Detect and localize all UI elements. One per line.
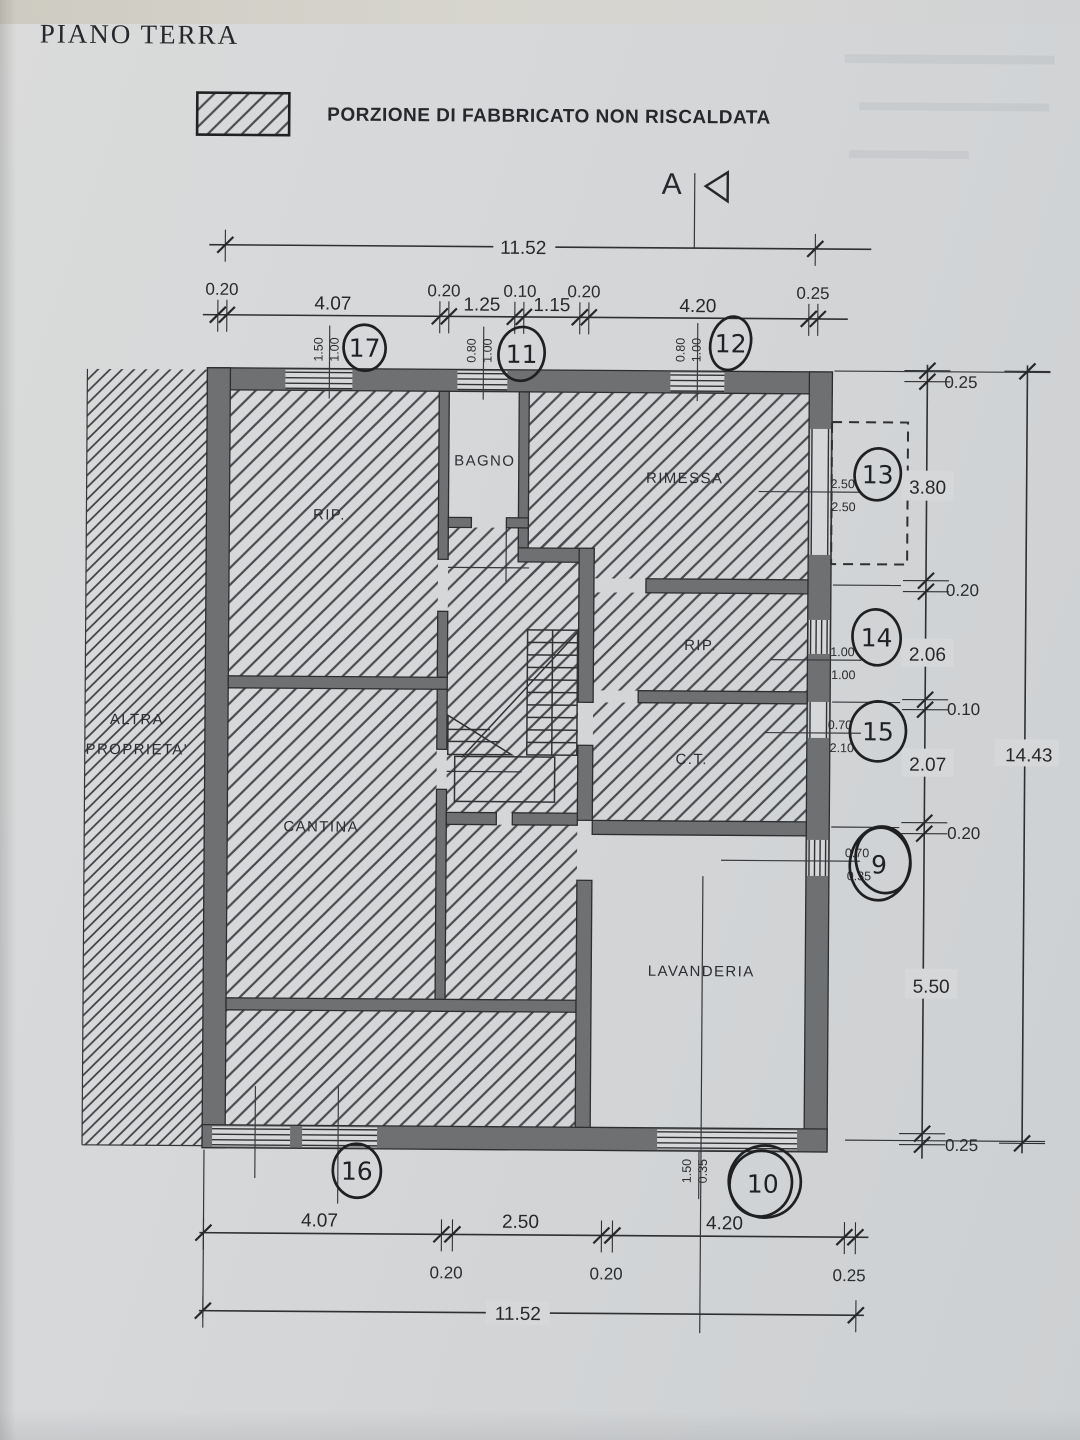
legend-label: PORZIONE DI FABBRICATO NON RISCALDATA xyxy=(327,105,771,129)
opening-14-width: 1.00 xyxy=(830,645,854,659)
room-label-altra-2: PROPRIETA' xyxy=(86,741,189,759)
opening-15-width: 0.70 xyxy=(828,718,852,732)
opening-10-number: 10 xyxy=(747,1169,779,1198)
dim-top-total: 11.52 xyxy=(500,238,546,259)
opening-12-number: 12 xyxy=(715,329,747,358)
dim-bottom-w3: 0.25 xyxy=(833,1266,866,1285)
opening-15-height: 2.10 xyxy=(830,741,854,755)
dim-bottom-total: 11.52 xyxy=(495,1304,541,1325)
legend-hatch-swatch xyxy=(197,93,289,136)
opening-15-number: 15 xyxy=(862,717,894,746)
dim-top-w1: 0.20 xyxy=(205,280,238,299)
room-label-cantina: CANTINA xyxy=(283,818,359,836)
scan-artifacts xyxy=(844,54,1055,159)
dim-top-s4: 4.20 xyxy=(679,296,716,317)
dim-top-s1: 4.07 xyxy=(314,293,351,314)
page-title: PIANO TERRA xyxy=(40,18,239,49)
section-arrow-icon xyxy=(706,172,728,201)
scanned-floor-plan-page: PIANO TERRA PORZIONE DI FABBRICATO NON R… xyxy=(0,0,1080,1440)
opening-12-height: 1.00 xyxy=(690,338,704,362)
dim-right-s2: 2.06 xyxy=(909,645,946,666)
opening-17-width: 1.50 xyxy=(311,337,325,361)
room-label-ct: C.T. xyxy=(676,751,708,768)
dim-right-w3: 0.10 xyxy=(947,700,980,719)
opening-12-width: 0.80 xyxy=(674,338,688,362)
room-label-rimessa: RIMESSA xyxy=(646,470,723,488)
opening-14-number: 14 xyxy=(861,623,893,652)
dim-right-w1: 0.25 xyxy=(944,373,977,392)
dim-top-w2: 0.20 xyxy=(427,281,460,300)
dim-top-w4: 0.20 xyxy=(567,282,600,301)
garage-door-dashed-outline xyxy=(831,422,908,565)
opening-10-width: 1.50 xyxy=(680,1159,694,1183)
opening-9-number: 9 xyxy=(871,850,887,879)
opening-11-height: 1.00 xyxy=(480,338,494,362)
section-marker: A xyxy=(661,168,728,248)
room-label-lavanderia: LAVANDERIA xyxy=(648,963,755,981)
dim-bottom-s2: 2.50 xyxy=(502,1212,539,1233)
dim-right-total: 14.43 xyxy=(1005,745,1053,766)
dim-bottom-s1: 4.07 xyxy=(301,1210,338,1231)
opening-17-number: 17 xyxy=(349,334,381,363)
dim-right-w5: 0.25 xyxy=(945,1136,978,1155)
opening-17-height: 1.00 xyxy=(327,337,341,361)
dim-right-w4: 0.20 xyxy=(947,824,980,843)
room-label-altra-1: ALTRA xyxy=(110,711,164,728)
dim-bottom-w2: 0.20 xyxy=(590,1264,623,1283)
legend: PORZIONE DI FABBRICATO NON RISCALDATA xyxy=(197,93,771,139)
dim-bottom-s3: 4.20 xyxy=(706,1213,743,1234)
room-label-bagno: BAGNO xyxy=(454,452,515,469)
opening-14-height: 1.00 xyxy=(831,668,855,682)
dim-bottom-w1: 0.20 xyxy=(430,1263,463,1282)
section-line-bottom xyxy=(700,876,703,1333)
opening-13-number: 13 xyxy=(862,460,894,489)
dim-right-s3: 2.07 xyxy=(909,755,946,776)
dim-top-s2: 1.25 xyxy=(463,294,500,315)
opening-13-width: 2.50 xyxy=(830,477,854,491)
opening-11-width: 0.80 xyxy=(464,338,478,362)
section-line-top xyxy=(694,173,695,248)
dim-top-w3: 0.10 xyxy=(503,282,536,301)
opening-11-number: 11 xyxy=(506,340,538,369)
room-label-rip1: RIP. xyxy=(313,506,346,523)
top-dimensions: 11.52 0.20 4.07 0.20 1.25 0.10 1.15 0.20… xyxy=(203,230,872,337)
opening-16-number: 16 xyxy=(341,1157,373,1186)
dim-right-s4: 5.50 xyxy=(913,977,950,998)
dim-top-w5: 0.25 xyxy=(796,284,829,303)
section-marker-label: A xyxy=(662,168,682,201)
dim-top-s3: 1.15 xyxy=(533,295,570,316)
dim-right-s1: 3.80 xyxy=(909,478,946,499)
opening-13-height: 2.50 xyxy=(831,500,855,514)
dim-right-w2: 0.20 xyxy=(946,581,979,600)
opening-10-height: 0.35 xyxy=(696,1159,710,1183)
floor-plan-scan: PIANO TERRA PORZIONE DI FABBRICATO NON R… xyxy=(0,0,1080,1440)
room-label-rip2: RIP. xyxy=(684,637,717,654)
